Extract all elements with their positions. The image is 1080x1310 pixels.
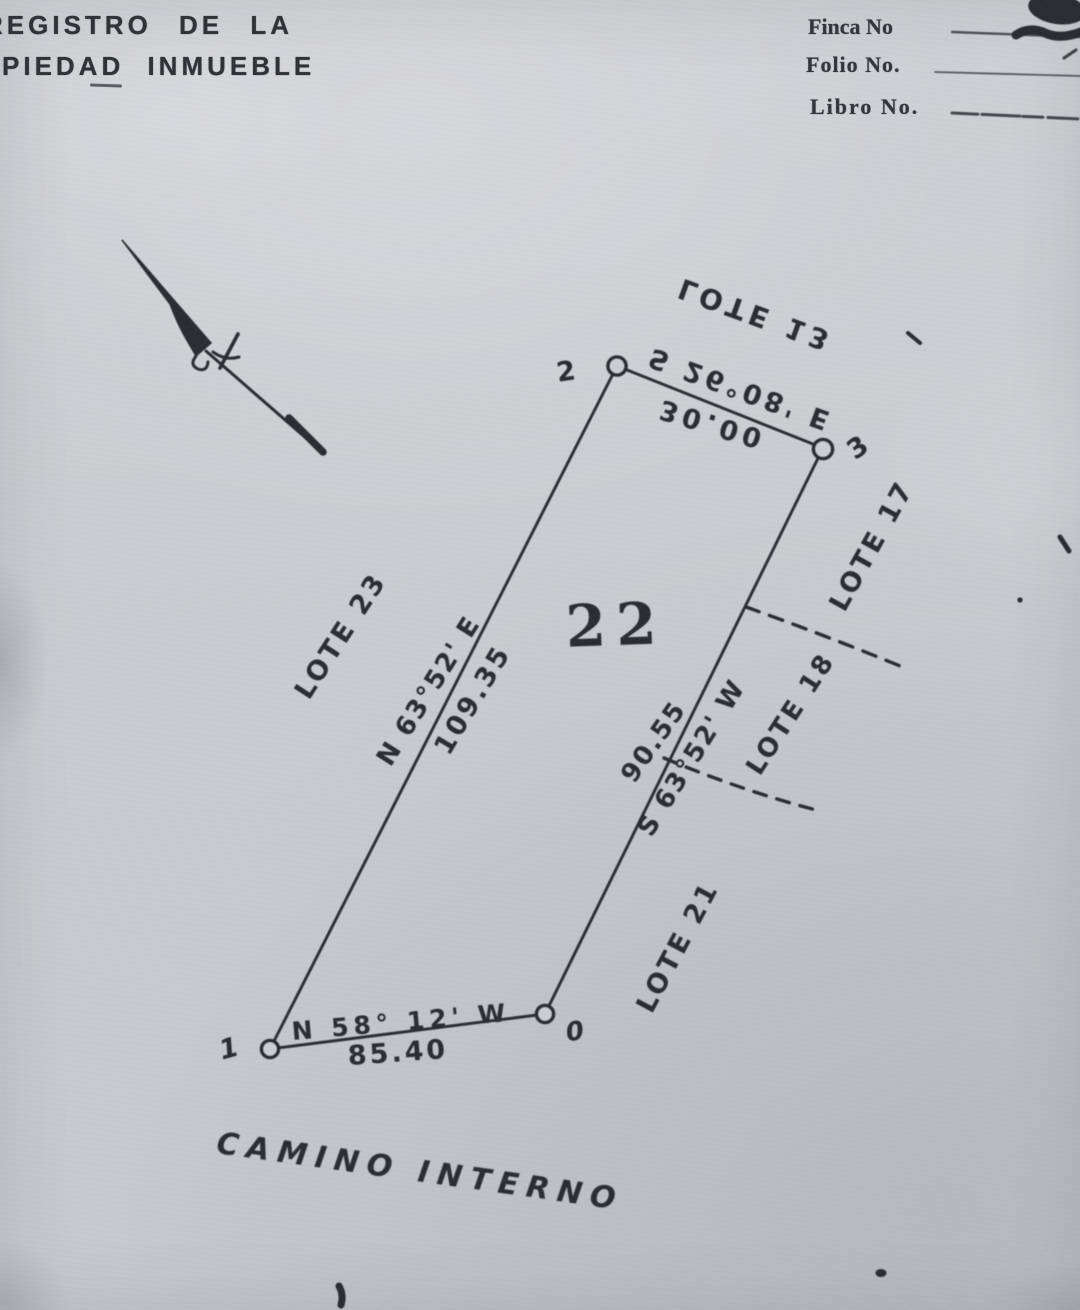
road-label: CAMINO INTERNO	[214, 1126, 625, 1218]
stray-comma-bottom	[339, 1286, 342, 1305]
stray-dot-bottom	[876, 1269, 887, 1277]
neighbor-label-lote-23: LOTE 23	[289, 567, 393, 705]
ink-blob	[1016, 0, 1080, 58]
neighbor-label-lote-18: LOTE 18	[740, 647, 841, 780]
vertex-1	[262, 1041, 279, 1058]
corner-label-1: 1	[216, 1032, 242, 1067]
vertex-3	[814, 440, 833, 459]
neighbor-label-lote-17: LOTE 17	[824, 475, 921, 616]
vertex-0	[537, 1006, 554, 1023]
stray-comma-right	[1060, 537, 1069, 551]
stray-tick-top	[908, 333, 920, 343]
neighbor-label-lote-21: LOTE 21	[631, 876, 726, 1018]
scanned-plat-page: REGISTRO DE LA PIEDAD INMUEBLE Finca No …	[0, 0, 1080, 1310]
corner-label-2: 2	[555, 355, 578, 388]
neighbor-label-lote-13: LOTE 13	[674, 272, 838, 359]
corner-label-0: 0	[563, 1016, 586, 1049]
lot-number: 22	[564, 589, 667, 660]
plat-drawing: 2 3 1 0 22 S 26°08' E 30.00 LOTE 13 N 63…	[0, 0, 1080, 1310]
north-arrow-icon	[122, 240, 323, 452]
vertex-2	[608, 357, 626, 375]
field-line-libro	[952, 113, 1080, 119]
corner-label-3: 3	[841, 430, 874, 466]
distance-south: 85.40	[347, 1034, 449, 1072]
field-line-folio	[935, 72, 1080, 76]
stray-dot-right	[1017, 597, 1022, 602]
